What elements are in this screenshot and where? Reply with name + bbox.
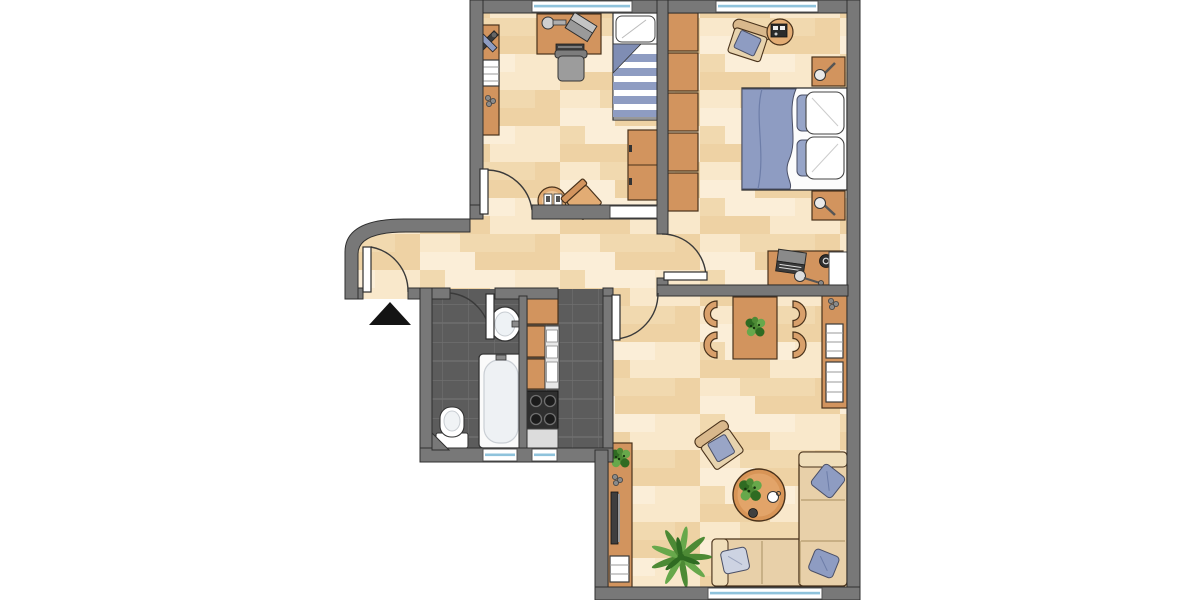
floorplan-canvas — [0, 0, 1200, 600]
tub-faucet — [496, 355, 506, 360]
striped-blanket — [613, 44, 658, 118]
desk-lamp — [795, 271, 806, 282]
wall-right — [847, 0, 860, 600]
wall-shelf-unit — [822, 296, 847, 408]
book-stack — [826, 362, 843, 402]
window-bedroom-top — [716, 1, 818, 12]
stove — [527, 391, 558, 429]
wall-bath-kitchen-divider — [519, 296, 527, 450]
coffee-table — [733, 469, 785, 521]
bed-pillow — [616, 16, 655, 42]
entrance-arrow — [369, 302, 411, 325]
wall-bath-left — [420, 288, 432, 462]
wall-opening-children — [610, 206, 657, 218]
dresser — [628, 130, 658, 200]
book-stack — [826, 324, 843, 358]
appliance-column — [545, 326, 559, 389]
tv — [611, 492, 620, 544]
kitchen — [527, 291, 559, 448]
base-cabinet — [527, 326, 545, 357]
wall-divider-children-bedroom — [657, 0, 668, 234]
duvet — [742, 89, 796, 189]
base-cabinet — [527, 359, 545, 389]
wardrobe — [668, 13, 698, 211]
wall-living-left-lower — [595, 450, 608, 600]
bathtub — [479, 354, 523, 448]
radiator — [829, 252, 847, 285]
wash-basin — [490, 307, 521, 341]
wall-bedroom-bottom — [657, 285, 848, 296]
nightstand-top — [812, 57, 845, 86]
window-bathroom-bottom — [483, 449, 517, 461]
window-children-top — [532, 1, 632, 12]
media-stack — [610, 556, 629, 582]
sideboard — [608, 443, 632, 588]
window-living-bottom — [708, 588, 822, 599]
double-bed — [742, 88, 847, 190]
bowl — [749, 509, 758, 518]
book-stack — [483, 60, 499, 86]
single-bed — [613, 13, 658, 120]
window-kitchen-bottom — [532, 449, 557, 461]
floorplan-drawing — [0, 0, 1200, 600]
radio — [771, 24, 787, 37]
desk-chair — [555, 50, 587, 81]
nightstand-bottom — [812, 191, 845, 220]
side-table-radio — [767, 19, 793, 45]
counter-strip — [527, 429, 558, 448]
sofa-pillow — [720, 547, 750, 575]
